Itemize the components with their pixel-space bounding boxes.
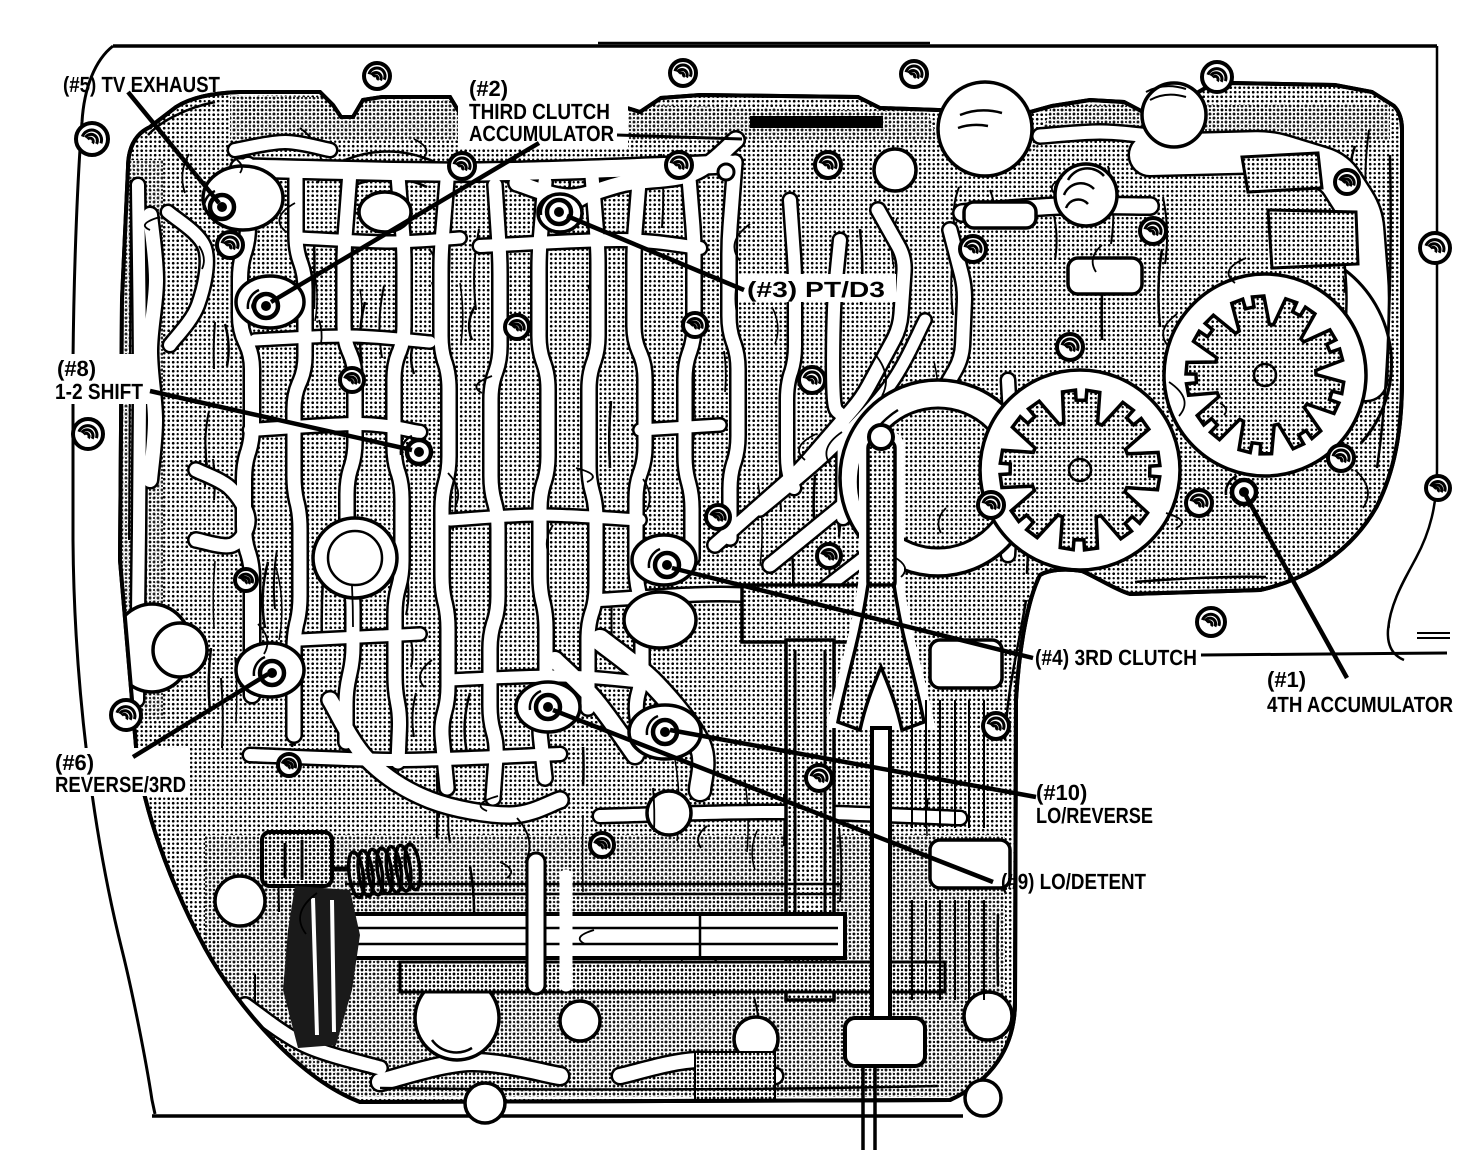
svg-text:ACCUMULATOR: ACCUMULATOR (469, 121, 614, 146)
svg-text:(#8): (#8) (57, 356, 96, 381)
svg-text:(#1): (#1) (1267, 667, 1306, 692)
svg-text:(#4) 3RD CLUTCH: (#4) 3RD CLUTCH (1035, 645, 1197, 670)
svg-text:(#9) LO/DETENT: (#9) LO/DETENT (1001, 869, 1146, 894)
svg-text:(#5) TV EXHAUST: (#5) TV EXHAUST (63, 72, 220, 97)
svg-text:(#2): (#2) (469, 76, 508, 101)
svg-text:REVERSE/3RD: REVERSE/3RD (55, 772, 186, 797)
svg-text:LO/REVERSE: LO/REVERSE (1036, 803, 1153, 828)
svg-text:(#10): (#10) (1036, 780, 1087, 805)
svg-text:1-2 SHIFT: 1-2 SHIFT (55, 379, 143, 404)
svg-text:4TH ACCUMULATOR: 4TH ACCUMULATOR (1267, 692, 1453, 717)
svg-text:(#3) PT/D3: (#3) PT/D3 (747, 277, 885, 302)
